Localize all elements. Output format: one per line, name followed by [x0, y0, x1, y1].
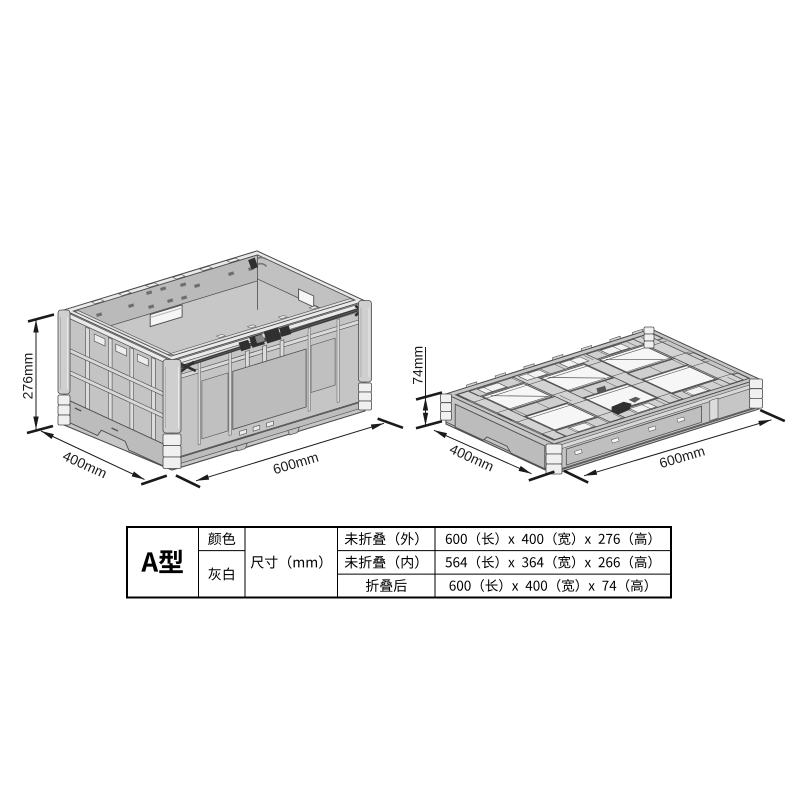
svg-text:400mm: 400mm: [447, 441, 496, 475]
svg-text:74mm: 74mm: [410, 346, 426, 385]
svg-text:276mm: 276mm: [20, 353, 36, 400]
svg-text:400mm: 400mm: [60, 447, 109, 481]
svg-text:600mm: 600mm: [271, 449, 320, 478]
